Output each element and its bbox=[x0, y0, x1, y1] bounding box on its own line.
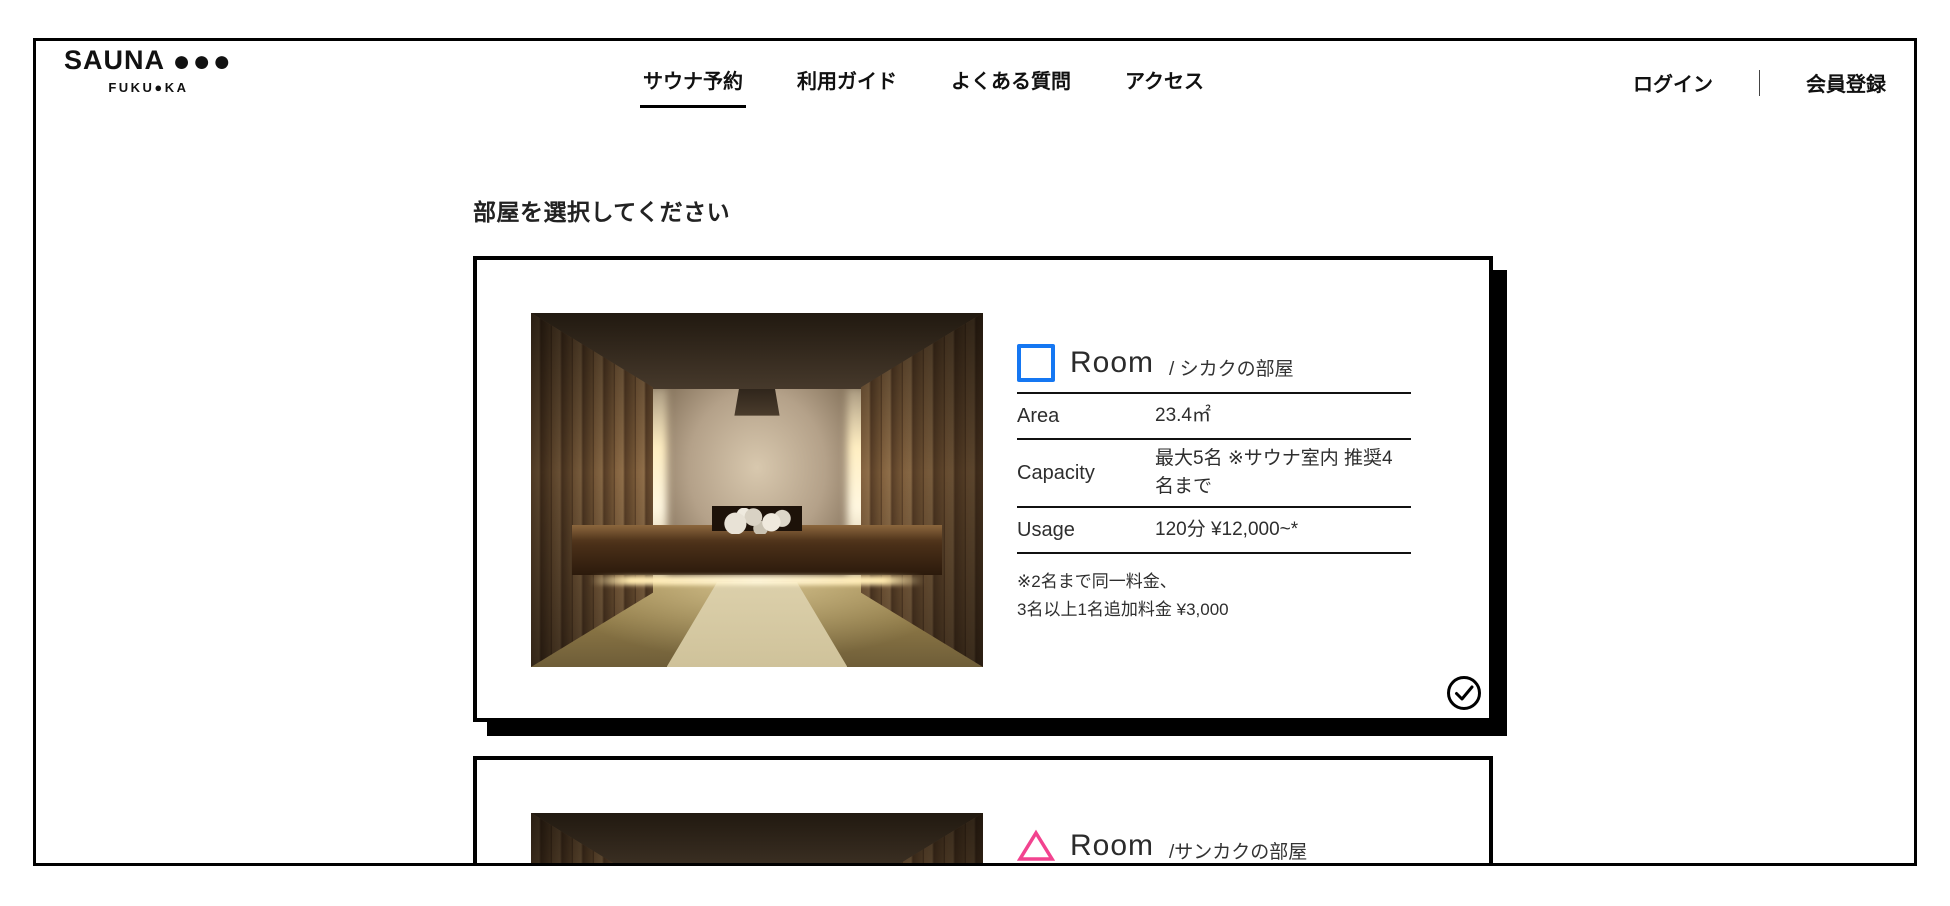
spec-row-capacity: Capacity 最大5名 ※サウナ室内 推奨4名まで bbox=[1017, 440, 1411, 508]
room-card-square[interactable]: Room / シカクの部屋 Area 23.4㎡ Capacity 最大5名 ※… bbox=[473, 256, 1493, 722]
room-subtitle: / シカクの部屋 bbox=[1169, 345, 1294, 381]
nav-item-faq[interactable]: よくある質問 bbox=[948, 65, 1074, 108]
room-title-row: Room / シカクの部屋 bbox=[1017, 344, 1411, 394]
main-nav: サウナ予約 利用ガイド よくある質問 アクセス bbox=[640, 65, 1207, 108]
room-subtitle: /サンカクの部屋 bbox=[1169, 828, 1307, 864]
triangle-outline-icon bbox=[1017, 829, 1055, 863]
spec-label: Usage bbox=[1017, 519, 1155, 542]
login-link[interactable]: ログイン bbox=[1633, 68, 1713, 97]
spec-label: Area bbox=[1017, 405, 1155, 428]
brand-subtitle: FUKU●KA bbox=[64, 80, 233, 95]
photo-layer bbox=[590, 576, 924, 585]
nav-item-access[interactable]: アクセス bbox=[1122, 65, 1207, 108]
spec-value: 最大5名 ※サウナ室内 推奨4名まで bbox=[1155, 445, 1411, 500]
spec-value: 120分 ¥12,000~* bbox=[1155, 516, 1298, 544]
room-card-triangle[interactable]: Room /サンカクの部屋 bbox=[473, 756, 1493, 866]
nav-item-usage-guide[interactable]: 利用ガイド bbox=[794, 65, 900, 108]
page-title: 部屋を選択してください bbox=[473, 193, 730, 227]
spec-row-usage: Usage 120分 ¥12,000~* bbox=[1017, 508, 1411, 554]
brand-logo[interactable]: SAUNA ●●● FUKU●KA bbox=[64, 45, 233, 95]
brand-dots-icon: ●●● bbox=[173, 45, 233, 78]
room-title: Room bbox=[1070, 829, 1154, 863]
brand-name: SAUNA ●●● bbox=[64, 45, 233, 79]
room-photo bbox=[531, 813, 983, 866]
room-title-row: Room /サンカクの部屋 bbox=[1017, 828, 1411, 866]
pricing-note-line: ※2名まで同一料金、 bbox=[1017, 568, 1229, 596]
auth-links: ログイン 会員登録 bbox=[1633, 68, 1886, 97]
page-frame: SAUNA ●●● FUKU●KA サウナ予約 利用ガイド よくある質問 アクセ… bbox=[33, 38, 1917, 866]
nav-item-sauna-reservation[interactable]: サウナ予約 bbox=[640, 65, 746, 108]
room-title: Room bbox=[1070, 346, 1154, 380]
auth-divider bbox=[1759, 70, 1760, 96]
register-link[interactable]: 会員登録 bbox=[1806, 68, 1886, 97]
spec-label: Capacity bbox=[1017, 462, 1155, 485]
photo-layer bbox=[721, 508, 793, 535]
square-outline-icon bbox=[1017, 344, 1055, 382]
pricing-note-line: 3名以上1名追加料金 ¥3,000 bbox=[1017, 596, 1229, 624]
check-circle-icon[interactable] bbox=[1445, 674, 1483, 712]
spec-value: 23.4㎡ bbox=[1155, 402, 1211, 430]
spec-row-area: Area 23.4㎡ bbox=[1017, 394, 1411, 440]
room-photo bbox=[531, 313, 983, 667]
pricing-notes: ※2名まで同一料金、 3名以上1名追加料金 ¥3,000 bbox=[1017, 568, 1229, 624]
